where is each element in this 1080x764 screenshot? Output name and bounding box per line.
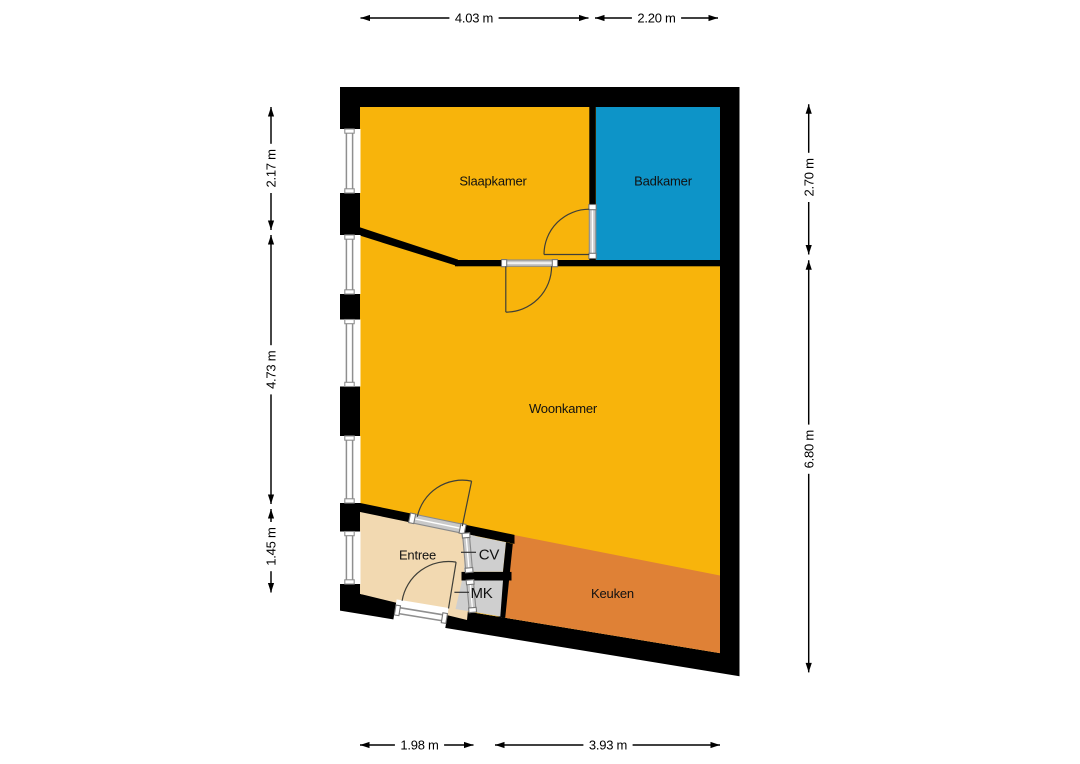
svg-text:Entree: Entree xyxy=(399,548,436,563)
svg-text:6.80 m: 6.80 m xyxy=(801,430,816,468)
svg-text:MK: MK xyxy=(470,585,492,602)
svg-text:1.45 m: 1.45 m xyxy=(264,527,279,565)
svg-text:Keuken: Keuken xyxy=(591,586,634,601)
svg-text:Slaapkamer: Slaapkamer xyxy=(459,174,527,189)
svg-text:Badkamer: Badkamer xyxy=(634,174,693,189)
svg-text:Woonkamer: Woonkamer xyxy=(529,401,598,416)
svg-text:1.98 m: 1.98 m xyxy=(400,738,438,753)
svg-text:3.93 m: 3.93 m xyxy=(589,738,627,753)
svg-text:2.70 m: 2.70 m xyxy=(801,158,816,196)
svg-text:4.03 m: 4.03 m xyxy=(455,11,493,26)
svg-text:4.73 m: 4.73 m xyxy=(264,351,279,389)
svg-text:2.20 m: 2.20 m xyxy=(637,11,675,26)
svg-text:2.17 m: 2.17 m xyxy=(264,149,279,187)
svg-text:CV: CV xyxy=(479,547,500,564)
